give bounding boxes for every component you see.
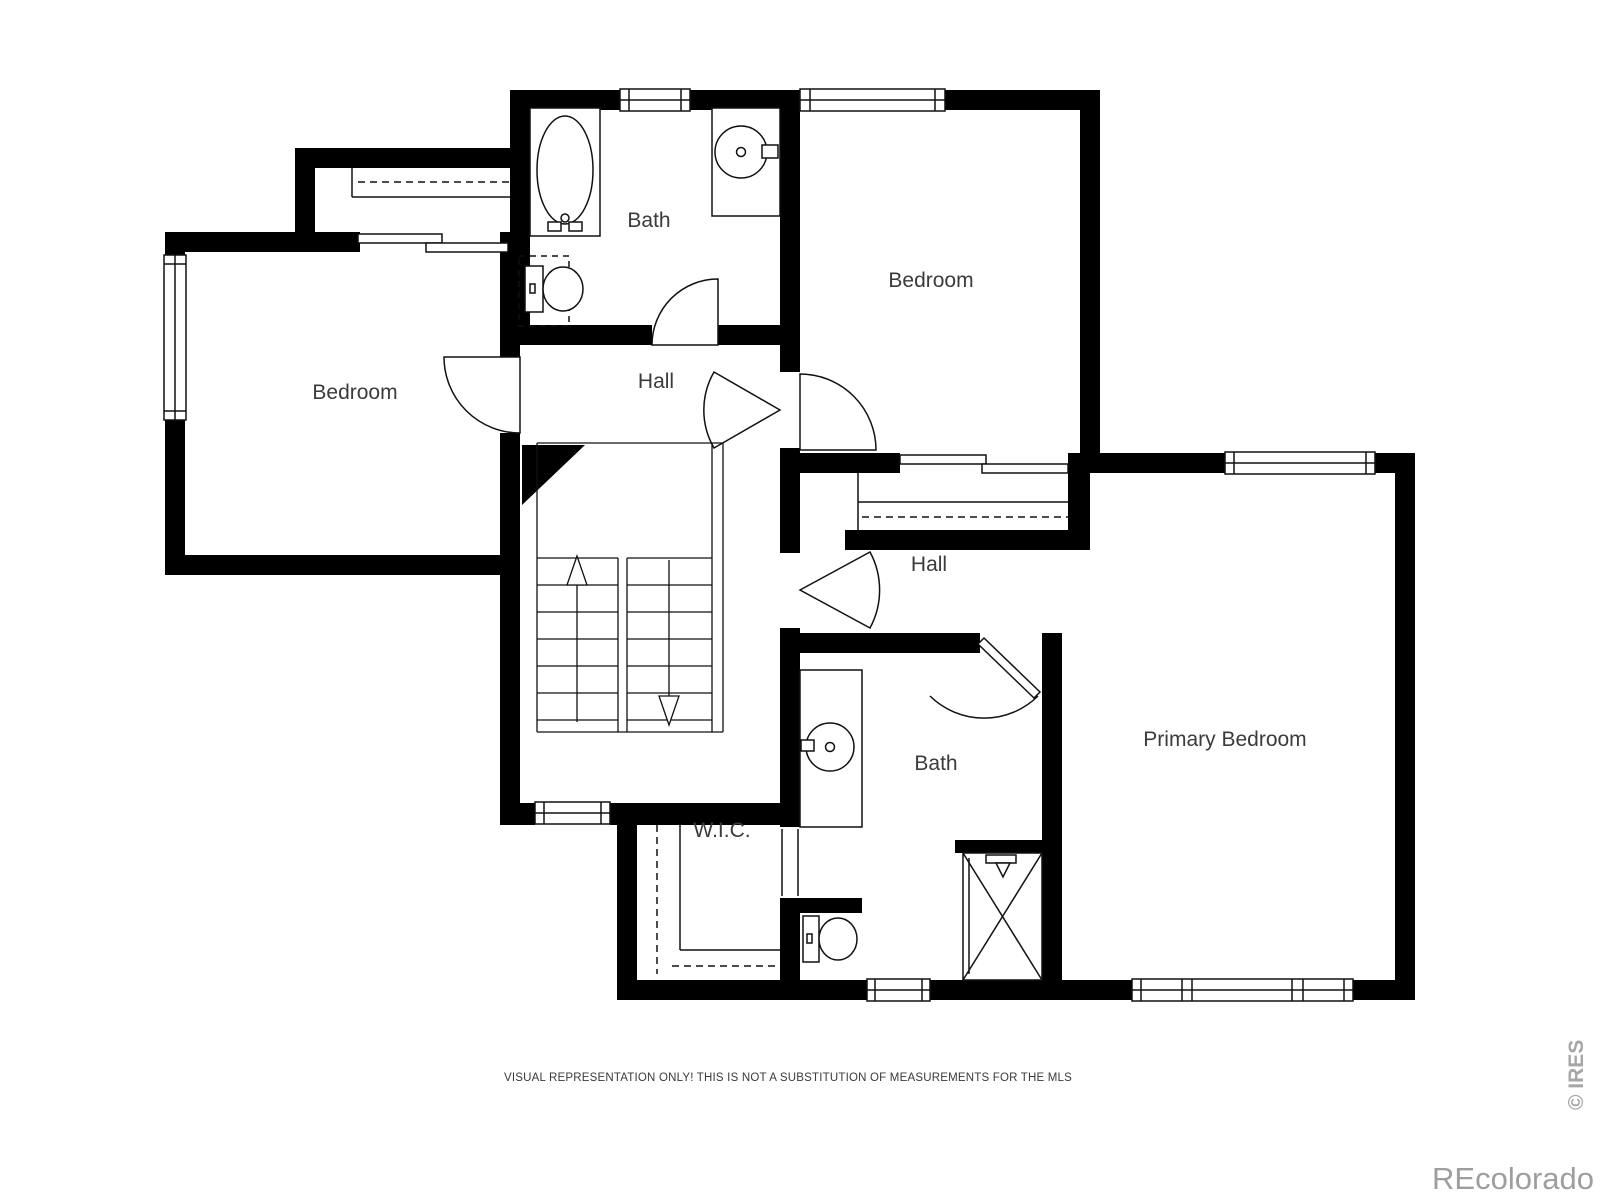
wall-segment — [945, 90, 1100, 110]
wall-segment — [690, 90, 800, 110]
window — [164, 255, 186, 420]
windows — [164, 89, 1375, 1001]
wall-segment — [780, 898, 800, 980]
room-label-bedroom-top: Bedroom — [888, 269, 973, 292]
door-swing — [704, 372, 780, 448]
wall-segment — [780, 453, 900, 473]
floorplan-drawing: Bath Bedroom Bedroom Hall Hall Primary B… — [0, 0, 1600, 1200]
wall-segment — [718, 325, 780, 345]
wall-segment — [780, 110, 800, 372]
doorway-opening — [782, 829, 798, 896]
door-swing — [800, 552, 880, 628]
wall-wedge — [522, 445, 585, 505]
wall-segment — [165, 232, 360, 252]
wall-segment — [165, 555, 520, 575]
wall-segment — [780, 653, 800, 827]
door-swing — [652, 279, 718, 345]
window — [867, 979, 930, 1001]
wall-segment — [845, 530, 1090, 550]
wall-segment — [1080, 90, 1100, 473]
wall-segment — [500, 433, 520, 823]
wall-segment — [1042, 633, 1062, 1000]
closet-shelf — [657, 825, 780, 974]
room-label-bath-upper: Bath — [627, 209, 670, 232]
room-label-wic: W.I.C. — [693, 819, 750, 842]
wall-segment — [165, 232, 185, 255]
wall-segment — [1353, 980, 1415, 1000]
watermark-source: © IRES — [1565, 1040, 1588, 1110]
window — [1132, 979, 1353, 1001]
bathtub — [530, 108, 600, 236]
floorplan-page: Bath Bedroom Bedroom Hall Hall Primary B… — [0, 0, 1600, 1200]
wall-segment — [930, 980, 1132, 1000]
room-label-primary-bedroom: Primary Bedroom — [1143, 728, 1306, 751]
wall-segment — [800, 898, 862, 913]
vanity-sink — [800, 670, 862, 827]
room-label-bath-lower: Bath — [914, 752, 957, 775]
wall-segment — [955, 840, 1062, 853]
door-swing — [800, 374, 876, 450]
sliding-door — [900, 455, 1068, 473]
closet-shelf — [858, 473, 1068, 530]
window — [1225, 452, 1375, 474]
toilet — [803, 916, 857, 962]
closet-shelf — [352, 168, 510, 197]
walls — [165, 90, 1415, 1000]
wall-segment — [780, 633, 980, 653]
wall-segment — [1090, 453, 1225, 473]
wall-segment — [295, 148, 515, 168]
window — [620, 89, 690, 111]
disclaimer-text: VISUAL REPRESENTATION ONLY! THIS IS NOT … — [504, 1072, 1072, 1084]
sink — [712, 108, 780, 216]
watermark-brand: REcolorado — [1432, 1161, 1594, 1196]
shower — [963, 853, 1042, 980]
window — [800, 89, 945, 111]
wall-segment — [510, 325, 652, 345]
room-label-hall-right: Hall — [911, 553, 947, 576]
window — [535, 802, 610, 824]
room-label-bedroom-left: Bedroom — [312, 381, 397, 404]
door-swing — [444, 357, 520, 433]
wall-segment — [617, 805, 637, 1000]
stairs — [537, 443, 723, 732]
wall-segment — [295, 148, 315, 232]
wall-segment — [165, 420, 185, 575]
sliding-door — [358, 234, 508, 252]
wall-segment — [1395, 453, 1415, 1000]
wall-segment — [617, 980, 867, 1000]
room-label-hall-upper: Hall — [638, 370, 674, 393]
